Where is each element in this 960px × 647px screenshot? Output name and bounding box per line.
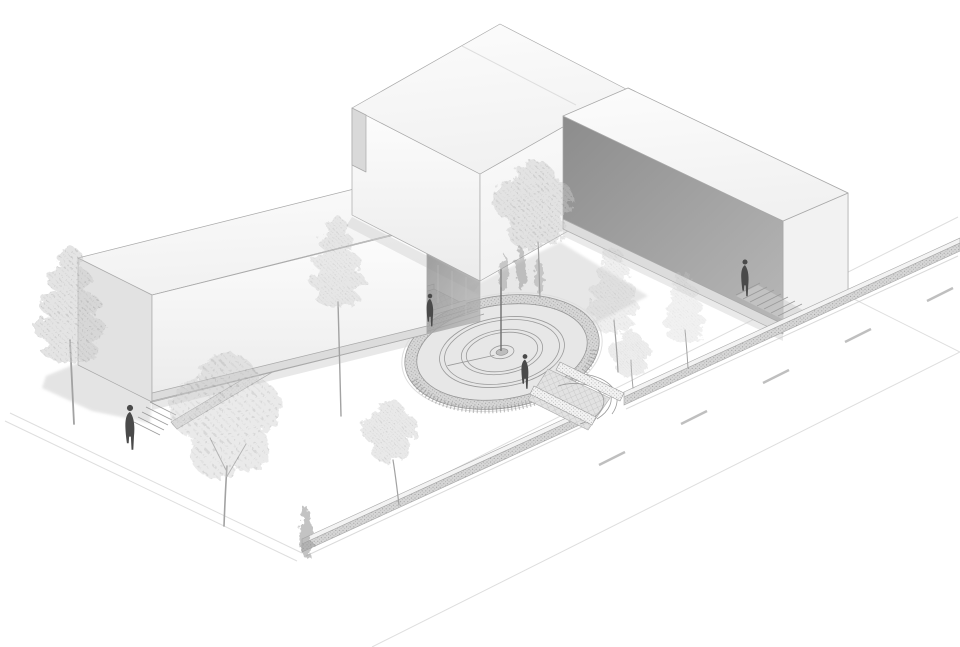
lane-dash <box>681 411 707 424</box>
birch-tree-center <box>362 401 418 506</box>
scene-svg <box>0 0 960 647</box>
tall-block-west-sliver <box>352 108 366 172</box>
wall-top-west <box>302 409 586 544</box>
lane-dash <box>599 452 625 465</box>
lane-dash <box>845 329 871 342</box>
axonometric-site-rendering <box>0 0 960 647</box>
lane-dash <box>763 370 789 383</box>
northeast-ground-line <box>848 296 960 352</box>
wall-stipple-west <box>302 414 586 552</box>
lane-dash <box>927 288 953 301</box>
